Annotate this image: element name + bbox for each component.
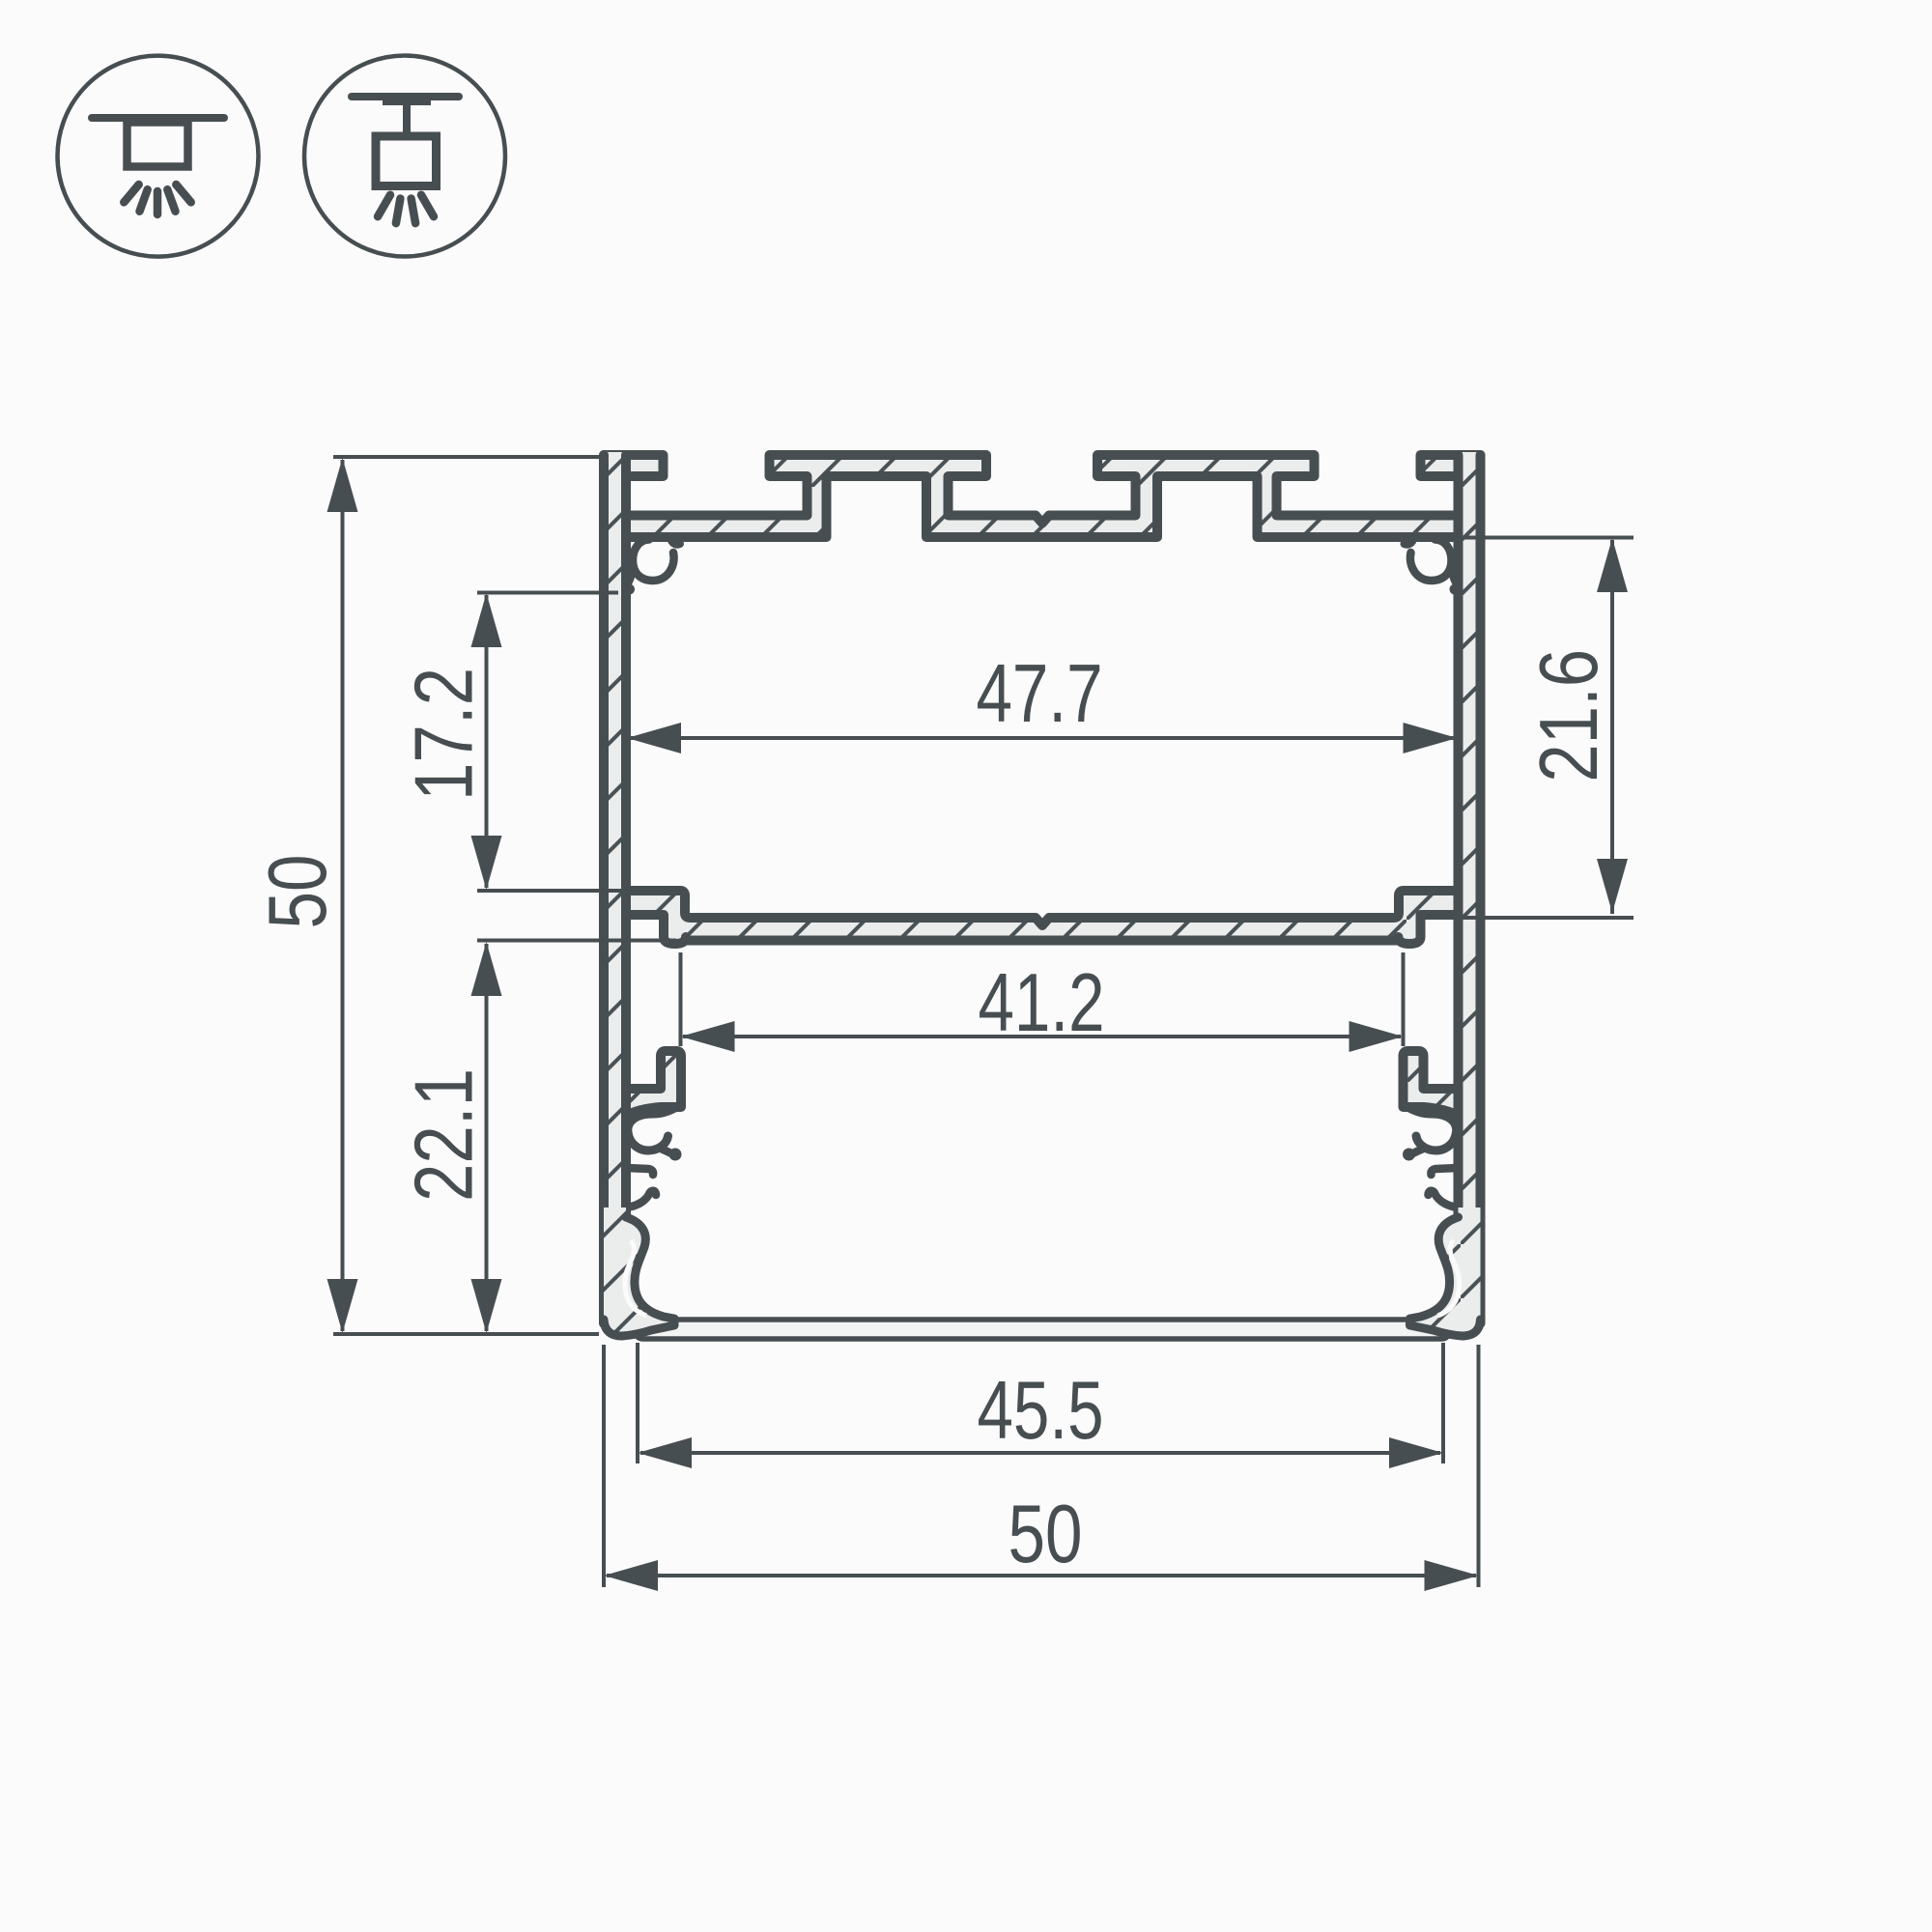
svg-text:50: 50 (1009, 1489, 1083, 1580)
svg-text:50: 50 (252, 855, 344, 929)
svg-text:45.5: 45.5 (978, 1365, 1104, 1457)
svg-text:47.7: 47.7 (977, 648, 1103, 740)
svg-text:22.1: 22.1 (399, 1068, 491, 1202)
svg-text:21.6: 21.6 (1523, 649, 1615, 782)
svg-text:17.2: 17.2 (399, 668, 491, 801)
svg-text:41.2: 41.2 (979, 957, 1105, 1049)
